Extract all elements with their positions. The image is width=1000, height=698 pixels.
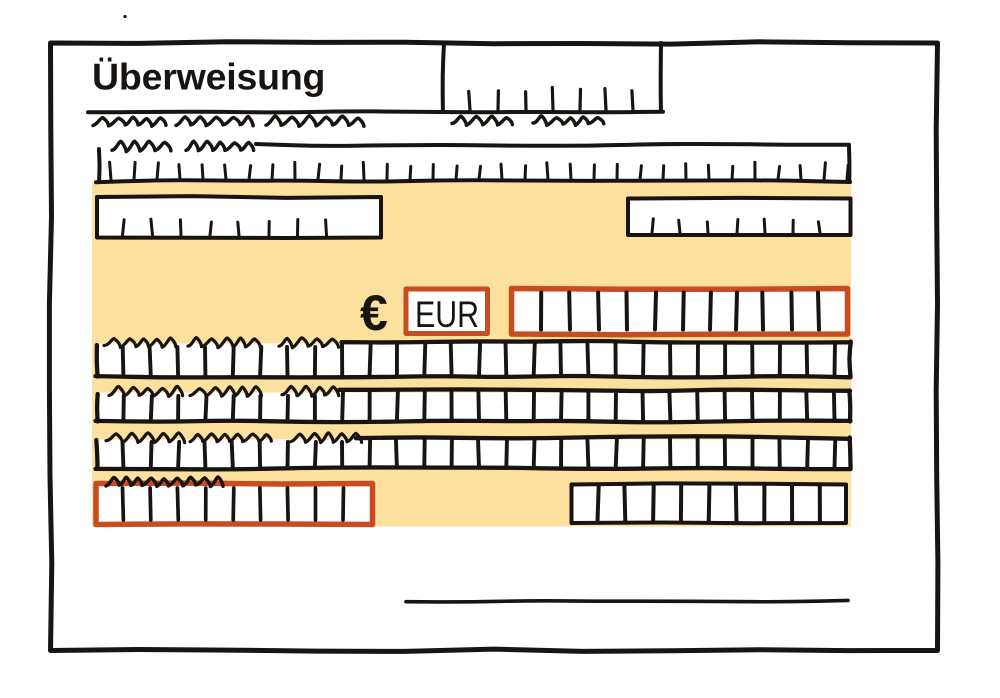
svg-text:€: € [360,285,388,341]
svg-text:Überweisung: Überweisung [92,56,325,98]
svg-text:EUR: EUR [415,294,479,335]
